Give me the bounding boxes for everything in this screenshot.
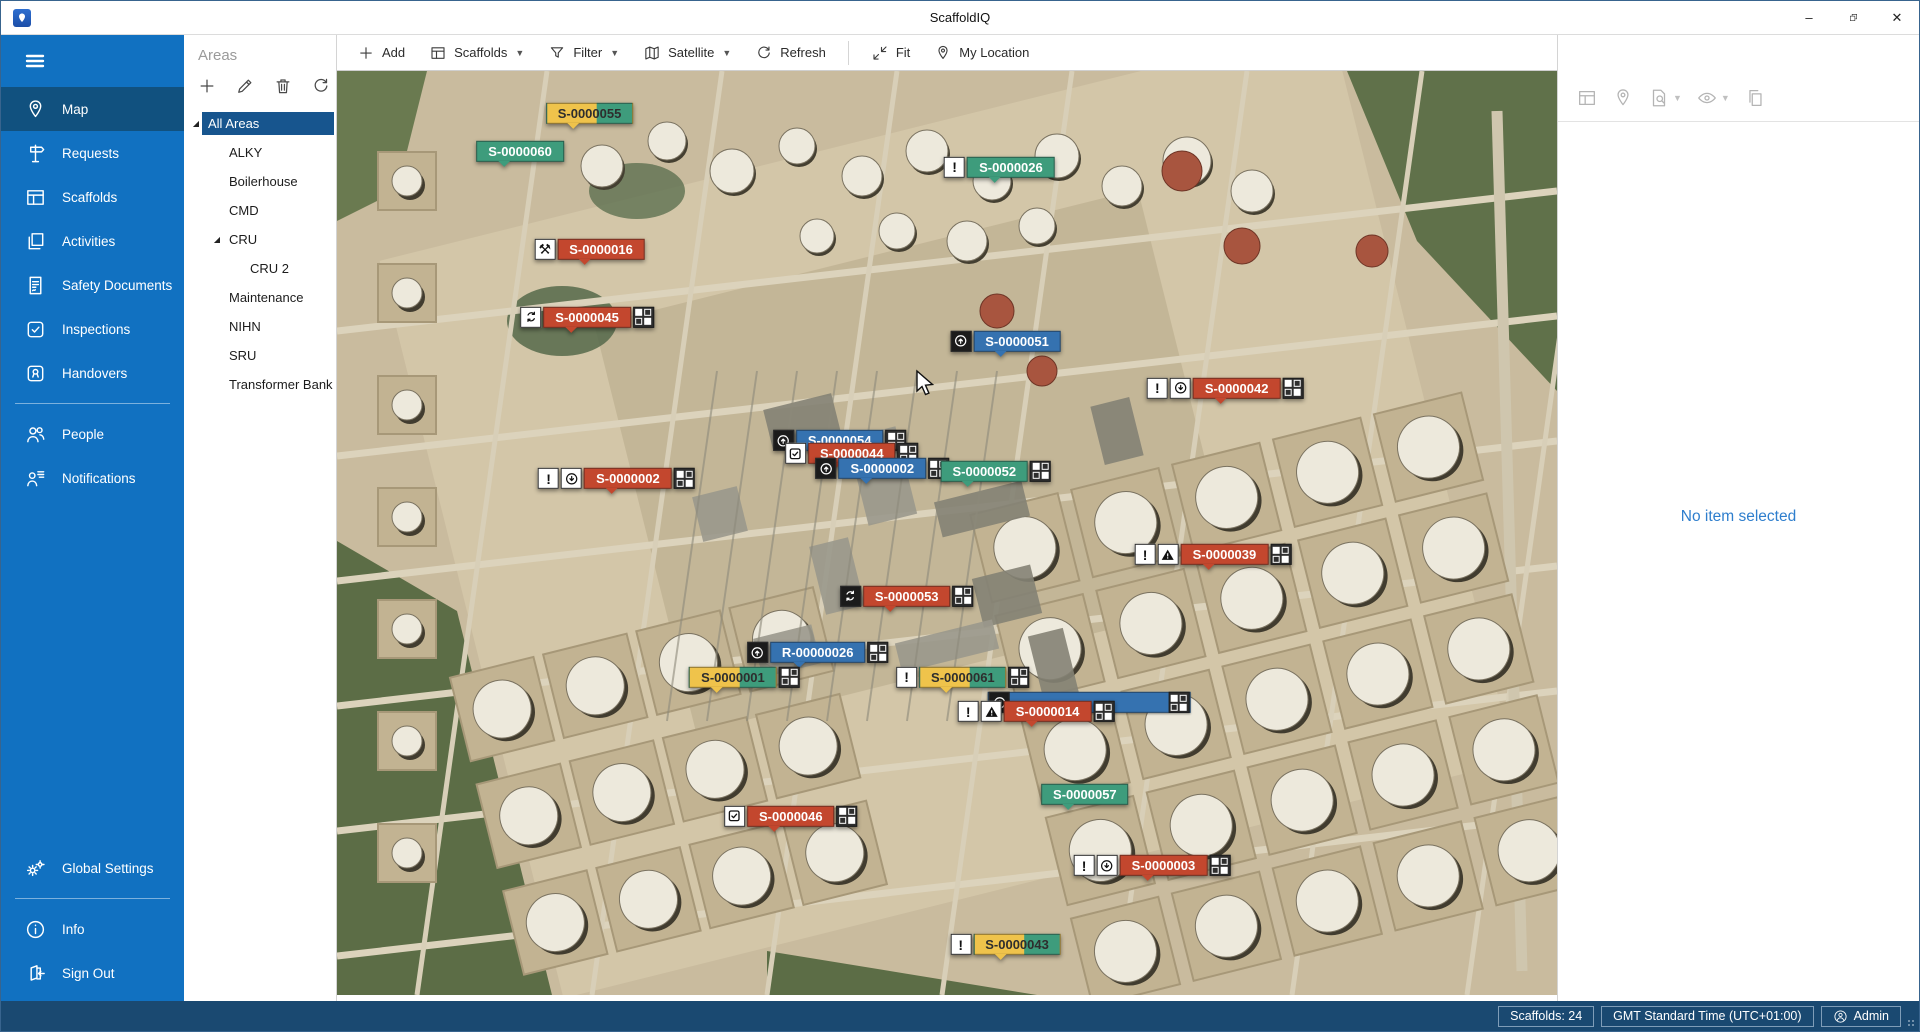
tag-row: !S-0000039: [1135, 544, 1292, 565]
alert-icon: !: [944, 157, 965, 178]
warning-icon: [1158, 544, 1179, 565]
tag-row: !S-0000061: [896, 667, 1030, 688]
scaffold-cluster-grid-icon[interactable]: [1009, 667, 1030, 688]
map-pin-icon: [934, 44, 952, 62]
refresh-icon: [755, 44, 773, 62]
tree-item-label: SRU: [223, 344, 262, 367]
doc-search-icon: [1648, 87, 1670, 109]
tree-item-boilerhouse[interactable]: Boilerhouse: [184, 167, 336, 196]
tree-item-label: CRU 2: [244, 257, 295, 280]
tag-label: S-0000061: [919, 667, 1007, 688]
tag-label: S-0000046: [747, 805, 835, 826]
fit-icon: [871, 44, 889, 62]
scaffold-cluster-grid-icon[interactable]: [1030, 461, 1051, 482]
scaffold-tag-s-0000026-2[interactable]: !S-0000026: [944, 157, 1055, 178]
tree-item-label: ALKY: [223, 141, 268, 164]
fit-button[interactable]: Fit: [861, 39, 920, 67]
details-panel: ▼▼ No item selected: [1557, 35, 1919, 1001]
arrow-down-icon: [1170, 378, 1191, 399]
alert-icon: !: [1074, 855, 1095, 876]
scaffold-cluster-grid-icon[interactable]: [867, 642, 888, 663]
trash-icon: [273, 76, 293, 101]
satellite-button[interactable]: Satellite▼: [633, 39, 741, 67]
sidebar-item-info[interactable]: Info: [1, 907, 184, 951]
scaffold-tag-s-0000057-18[interactable]: S-0000057: [1041, 784, 1129, 805]
restore-icon: [1848, 12, 1859, 23]
document-icon: [23, 273, 47, 297]
tag-label: S-0000002: [839, 458, 927, 479]
scaffold-details-button[interactable]: [1576, 87, 1598, 109]
sidebar-item-label: Map: [62, 102, 88, 117]
tag-label: S-0000002: [584, 468, 672, 489]
pencil-icon: [235, 76, 255, 101]
tag-row: S-0000055: [546, 103, 634, 124]
tag-label: S-0000001: [689, 667, 777, 688]
scaffold-cluster-grid-icon[interactable]: [837, 805, 858, 826]
sidebar-item-label: Inspections: [62, 322, 130, 337]
toolbar-button-label: Satellite: [668, 45, 714, 60]
scaffold-cluster-grid-icon[interactable]: [633, 306, 654, 327]
scaffold-tag-s-0000045-4[interactable]: S-0000045: [520, 306, 654, 327]
visibility-button[interactable]: ▼: [1696, 87, 1730, 109]
scaffold-tag-s-0000046-19[interactable]: S-0000046: [724, 805, 858, 826]
toolbar-button-label: Scaffolds: [454, 45, 507, 60]
sidebar-item-label: People: [62, 427, 104, 442]
map-pin-icon: [1612, 87, 1634, 109]
tag-label: S-0000055: [546, 103, 634, 124]
tree-item-label: Maintenance: [223, 286, 309, 309]
timezone-badge: GMT Standard Time (UTC+01:00): [1601, 1006, 1813, 1027]
tree-item-cru[interactable]: ◢CRU: [184, 225, 336, 254]
tag-row: !S-0000014: [958, 701, 1115, 722]
alert-icon: !: [950, 934, 971, 955]
hamburger-menu-button[interactable]: [1, 35, 184, 87]
sidebar-item-map[interactable]: Map: [1, 87, 184, 131]
tree-item-label: CMD: [223, 199, 265, 222]
map-icon: [643, 44, 661, 62]
sidebar-item-label: Sign Out: [62, 966, 115, 981]
tag-label: S-0000052: [940, 461, 1028, 482]
info-icon: [23, 917, 47, 941]
scaffold-tag-s-0000043-21[interactable]: !S-0000043: [950, 934, 1061, 955]
scaffolds-button[interactable]: Scaffolds▼: [419, 39, 534, 67]
toolbar-button-label: Add: [382, 45, 405, 60]
resize-grip[interactable]: [1907, 1019, 1917, 1029]
scaffold-tag-s-0000001-15[interactable]: S-0000001: [689, 667, 800, 688]
tag-row: S-0000001: [689, 667, 800, 688]
areas-tree: ◢All AreasALKYBoilerhouseCMD◢CRUCRU 2Mai…: [184, 109, 336, 1001]
tree-item-maintenance[interactable]: Maintenance: [184, 283, 336, 312]
scaffold-cluster-grid-icon[interactable]: [1093, 701, 1114, 722]
tree-item-label: Transformer Bank: [223, 373, 339, 396]
restore-button[interactable]: [1831, 1, 1875, 34]
alert-icon: !: [538, 468, 559, 489]
refresh-icon: [311, 76, 331, 101]
sidebar-item-label: Notifications: [62, 471, 136, 486]
scaffold-tag-s-0000055-0[interactable]: S-0000055: [546, 103, 634, 124]
areas-panel-title: Areas: [184, 35, 336, 70]
tree-item-label: NIHN: [223, 315, 267, 338]
check-icon: [724, 805, 745, 826]
badge-icon: [23, 361, 47, 385]
map-toolbar: AddScaffolds▼Filter▼Satellite▼RefreshFit…: [337, 35, 1557, 71]
sidebar-item-sign-out[interactable]: Sign Out: [1, 951, 184, 995]
filter-button[interactable]: Filter▼: [538, 39, 629, 67]
scaffold-cluster-grid-icon[interactable]: [953, 585, 974, 606]
tree-item-cmd[interactable]: CMD: [184, 196, 336, 225]
tag-row: !S-0000026: [944, 157, 1055, 178]
toolbar-button-label: My Location: [959, 45, 1029, 60]
timezone-label: GMT Standard Time (UTC+01:00): [1613, 1009, 1801, 1024]
sidebar-item-inspections[interactable]: Inspections: [1, 307, 184, 351]
arrow-down-icon: [561, 468, 582, 489]
toolbar-separator: [848, 41, 849, 65]
alert-icon: !: [896, 667, 917, 688]
sidebar-item-label: Handovers: [62, 366, 127, 381]
toolbar-button-label: Refresh: [780, 45, 826, 60]
toolbar-button-label: Fit: [896, 45, 910, 60]
chevron-down-icon[interactable]: ▼: [515, 48, 524, 58]
copy-icon: [1744, 87, 1766, 109]
no-item-selected-text: No item selected: [1558, 508, 1919, 526]
scaffold-tag-s-0000051-5[interactable]: S-0000051: [950, 330, 1061, 351]
scaffold-tag-s-0000039-12[interactable]: !S-0000039: [1135, 544, 1292, 565]
document-search-button[interactable]: ▼: [1648, 87, 1682, 109]
tag-label: S-0000026: [967, 157, 1055, 178]
copy-button[interactable]: [1744, 87, 1766, 109]
map-pin-icon: [23, 97, 47, 121]
tag-label: S-0000051: [973, 330, 1061, 351]
sidebar-item-activities[interactable]: Activities: [1, 219, 184, 263]
titlebar: ScaffoldIQ – ✕: [1, 1, 1919, 35]
hamburger-icon: [23, 49, 47, 73]
map-canvas[interactable]: S-0000055S-0000060!S-0000026⚒S-0000016S-…: [337, 71, 1557, 995]
sidebar-item-notifications[interactable]: Notifications: [1, 456, 184, 500]
sidebar: MapRequestsScaffoldsActivitiesSafety Doc…: [1, 35, 184, 1001]
tag-row: S-0000060: [476, 141, 564, 162]
tree-item-alky[interactable]: ALKY: [184, 138, 336, 167]
close-button[interactable]: ✕: [1875, 1, 1919, 34]
refresh-button[interactable]: Refresh: [745, 39, 836, 67]
scaffold-tag-r-00000026-14[interactable]: R-00000026: [747, 642, 889, 663]
alert-icon: !: [1147, 378, 1168, 399]
tag-row: !S-0000043: [950, 934, 1061, 955]
scaffold-tag-s-0000042-6[interactable]: !S-0000042: [1147, 378, 1304, 399]
user-badge[interactable]: Admin: [1821, 1006, 1901, 1027]
scaffold-cluster-grid-icon[interactable]: [1209, 855, 1230, 876]
stack-icon: [23, 229, 47, 253]
areas-toolbar: [184, 70, 336, 109]
sidebar-item-label: Safety Documents: [62, 278, 172, 293]
scaffold-cluster-grid-icon[interactable]: [1168, 692, 1189, 713]
scaffold-tag-s-0000014-17[interactable]: !S-0000014: [958, 701, 1115, 722]
tag-label: S-0000060: [476, 141, 564, 162]
scaffold-icon: [1576, 87, 1598, 109]
expander-icon[interactable]: ◢: [211, 235, 223, 244]
tag-row: S-0000002: [816, 458, 950, 479]
scaffold-tag-s-0000003-20[interactable]: !S-0000003: [1074, 855, 1231, 876]
check-icon: [785, 443, 806, 464]
tag-label: S-0000057: [1041, 784, 1129, 805]
tag-row: !S-0000002: [538, 468, 695, 489]
sidebar-item-label: Global Settings: [62, 861, 154, 876]
funnel-icon: [548, 44, 566, 62]
sidebar-item-people[interactable]: People: [1, 412, 184, 456]
edit-area-button[interactable]: [234, 78, 255, 99]
tree-item-sru[interactable]: SRU: [184, 341, 336, 370]
chevron-down-icon: ▼: [1721, 93, 1730, 103]
chevron-down-icon[interactable]: ▼: [722, 48, 731, 58]
sidebar-item-label: Requests: [62, 146, 119, 161]
tag-row: !S-0000003: [1074, 855, 1231, 876]
plus-icon: [357, 44, 375, 62]
scaffold-cluster-grid-icon[interactable]: [674, 468, 695, 489]
sidebar-item-label: Info: [62, 922, 85, 937]
tree-item-transformer-bank[interactable]: Transformer Bank: [184, 370, 336, 399]
sidebar-item-safety-documents[interactable]: Safety Documents: [1, 263, 184, 307]
person-note-icon: [23, 466, 47, 490]
add-area-button[interactable]: [196, 78, 217, 99]
tree-item-label: Boilerhouse: [223, 170, 304, 193]
refresh-area-button[interactable]: [310, 78, 331, 99]
arrow-up-icon: [950, 330, 971, 351]
status-bar: Scaffolds: 24 GMT Standard Time (UTC+01:…: [1, 1001, 1919, 1031]
app-window: ScaffoldIQ – ✕ MapRequestsScaffoldsActiv…: [0, 0, 1920, 1032]
chevron-down-icon[interactable]: ▼: [610, 48, 619, 58]
sync-icon: [840, 585, 861, 606]
sidebar-item-global-settings[interactable]: Global Settings: [1, 846, 184, 890]
scaffold-tag-s-0000061-16[interactable]: !S-0000061: [896, 667, 1030, 688]
scaffold-icon: [429, 44, 447, 62]
tree-item-cru-2[interactable]: CRU 2: [184, 254, 336, 283]
tag-label: S-0000042: [1193, 378, 1281, 399]
plus-icon: [197, 76, 217, 101]
sidebar-item-requests[interactable]: Requests: [1, 131, 184, 175]
alert-icon: !: [1135, 544, 1156, 565]
scaffold-tag-s-0000002-11[interactable]: !S-0000002: [538, 468, 695, 489]
app-logo-icon: [13, 9, 31, 27]
scaffold-cluster-grid-icon[interactable]: [1282, 378, 1303, 399]
sidebar-item-label: Activities: [62, 234, 115, 249]
tag-row: S-0000052: [940, 461, 1051, 482]
details-toolbar: ▼▼: [1558, 35, 1919, 122]
tag-row: S-0000045: [520, 306, 654, 327]
tag-label: S-0000053: [863, 585, 951, 606]
alert-icon: !: [958, 701, 979, 722]
eye-icon: [1696, 87, 1718, 109]
sidebar-divider: [15, 403, 170, 404]
scaffold-tag-s-0000053-13[interactable]: S-0000053: [840, 585, 974, 606]
scaffold-cluster-grid-icon[interactable]: [779, 667, 800, 688]
window-title: ScaffoldIQ: [1, 10, 1919, 25]
tools-icon: ⚒: [534, 239, 555, 260]
tag-row: ⚒S-0000016: [534, 239, 645, 260]
sidebar-item-label: Scaffolds: [62, 190, 117, 205]
locate-button[interactable]: [1612, 87, 1634, 109]
delete-area-button[interactable]: [272, 78, 293, 99]
tag-row: S-0000053: [840, 585, 974, 606]
tag-label: S-0000043: [973, 934, 1061, 955]
tag-label: S-0000014: [1004, 701, 1092, 722]
areas-panel: Areas ◢All AreasALKYBoilerhouseCMD◢CRUCR…: [184, 35, 337, 1001]
check-square-icon: [23, 317, 47, 341]
gears-icon: [23, 856, 47, 880]
scaffold-icon: [23, 185, 47, 209]
sign-out-icon: [23, 961, 47, 985]
expander-icon[interactable]: ◢: [190, 119, 202, 128]
tag-label: S-0000016: [557, 239, 645, 260]
arrow-up-icon: [747, 642, 768, 663]
tag-row: S-0000057: [1041, 784, 1129, 805]
sync-icon: [520, 306, 541, 327]
scaffold-count-badge: Scaffolds: 24: [1498, 1006, 1594, 1027]
tag-row: S-0000046: [724, 805, 858, 826]
tree-item-all-areas[interactable]: ◢All Areas: [184, 109, 336, 138]
tag-label: S-0000003: [1120, 855, 1208, 876]
tree-item-label: All Areas: [202, 112, 334, 135]
scaffold-tag-s-0000052-10[interactable]: S-0000052: [940, 461, 1051, 482]
signpost-icon: [23, 141, 47, 165]
add-button[interactable]: Add: [347, 39, 415, 67]
tag-label: S-0000039: [1181, 544, 1269, 565]
tag-label: S-0000045: [543, 306, 631, 327]
tree-item-nihn[interactable]: NIHN: [184, 312, 336, 341]
sidebar-divider: [15, 898, 170, 899]
my-location-button[interactable]: My Location: [924, 39, 1039, 67]
tag-row: !S-0000042: [1147, 378, 1304, 399]
tag-row: R-00000026: [747, 642, 889, 663]
minimize-button[interactable]: –: [1787, 1, 1831, 34]
scaffold-cluster-grid-icon[interactable]: [1270, 544, 1291, 565]
toolbar-button-label: Filter: [573, 45, 602, 60]
scaffold-tag-s-0000002-9[interactable]: S-0000002: [816, 458, 950, 479]
sidebar-item-scaffolds[interactable]: Scaffolds: [1, 175, 184, 219]
chevron-down-icon: ▼: [1673, 93, 1682, 103]
arrow-up-icon: [816, 458, 837, 479]
sidebar-item-handovers[interactable]: Handovers: [1, 351, 184, 395]
tag-label: R-00000026: [770, 642, 866, 663]
user-icon: [1833, 1009, 1848, 1024]
arrow-down-icon: [1097, 855, 1118, 876]
tree-item-label: CRU: [223, 228, 263, 251]
scaffold-count-label: Scaffolds: 24: [1510, 1009, 1582, 1024]
scaffold-tag-s-0000016-3[interactable]: ⚒S-0000016: [534, 239, 645, 260]
satellite-imagery: [337, 71, 1557, 995]
people-icon: [23, 422, 47, 446]
tag-row: S-0000051: [950, 330, 1061, 351]
user-label: Admin: [1854, 1009, 1889, 1024]
warning-icon: [981, 701, 1002, 722]
scaffold-tag-s-0000060-1[interactable]: S-0000060: [476, 141, 564, 162]
